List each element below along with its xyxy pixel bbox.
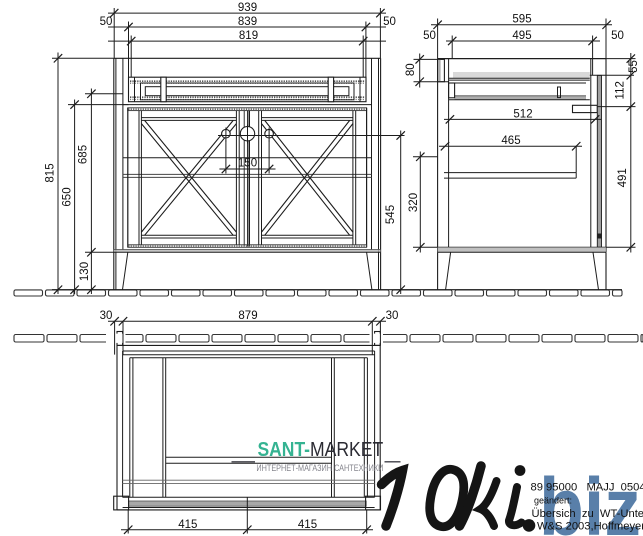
svg-text:geändert:: geändert: [534, 496, 572, 506]
svg-text:595: 595 [512, 14, 531, 26]
svg-text:495: 495 [512, 30, 531, 42]
svg-text:415: 415 [178, 519, 197, 531]
svg-text:879: 879 [238, 310, 257, 322]
svg-text:55: 55 [628, 60, 640, 73]
svg-text:80: 80 [405, 63, 417, 76]
svg-text:50: 50 [611, 30, 624, 42]
svg-text:815: 815 [45, 163, 57, 182]
svg-text:30: 30 [100, 310, 113, 322]
svg-text:685: 685 [78, 145, 90, 164]
svg-text:839: 839 [238, 16, 257, 28]
svg-text:112: 112 [614, 81, 626, 99]
svg-text:545: 545 [385, 205, 397, 224]
svg-text:Übersich zu WT-Unters: Übersich zu WT-Unters [532, 508, 643, 520]
svg-text:150: 150 [238, 157, 257, 169]
svg-text:512: 512 [513, 108, 532, 120]
svg-text:SANT-MARKET: SANT-MARKET [258, 439, 384, 461]
svg-text:415: 415 [298, 519, 317, 531]
svg-text:89 95000 MAJJ 0504 R: 89 95000 MAJJ 0504 R [531, 482, 643, 494]
svg-text:30: 30 [386, 310, 399, 322]
svg-text:W&S 2003,Hoffmeyer: W&S 2003,Hoffmeyer [537, 521, 643, 533]
svg-text:491: 491 [617, 168, 629, 187]
svg-text:50: 50 [100, 16, 113, 28]
svg-text:ИНТЕРНЕТ-МАГАЗИН САНТЕХНИКИ: ИНТЕРНЕТ-МАГАЗИН САНТЕХНИКИ [256, 463, 383, 473]
svg-text:50: 50 [423, 30, 436, 42]
svg-text:50: 50 [383, 16, 396, 28]
svg-text:320: 320 [408, 193, 420, 212]
svg-text:939: 939 [238, 2, 257, 14]
svg-text:819: 819 [239, 30, 258, 42]
svg-text:650: 650 [62, 187, 74, 206]
svg-text:130: 130 [79, 262, 91, 281]
svg-text:465: 465 [501, 135, 520, 147]
